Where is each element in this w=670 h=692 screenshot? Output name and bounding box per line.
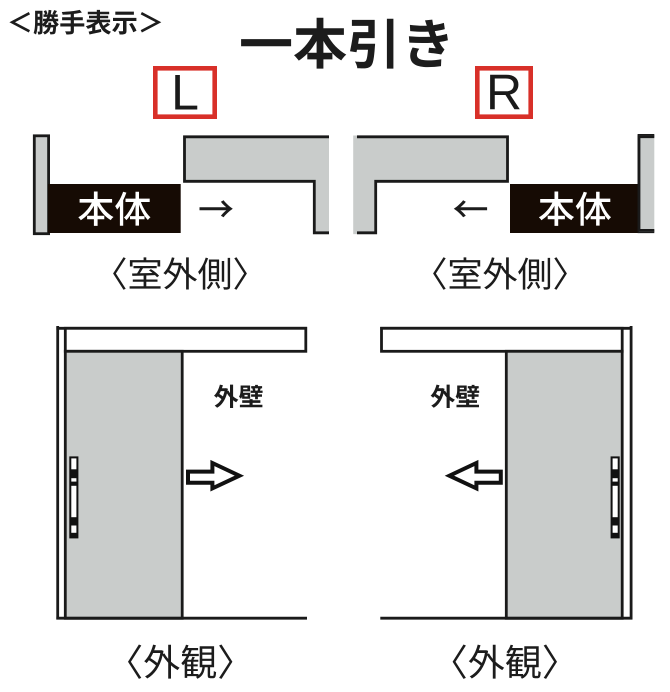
svg-text:R: R [486, 65, 522, 121]
svg-text:L: L [171, 65, 199, 121]
